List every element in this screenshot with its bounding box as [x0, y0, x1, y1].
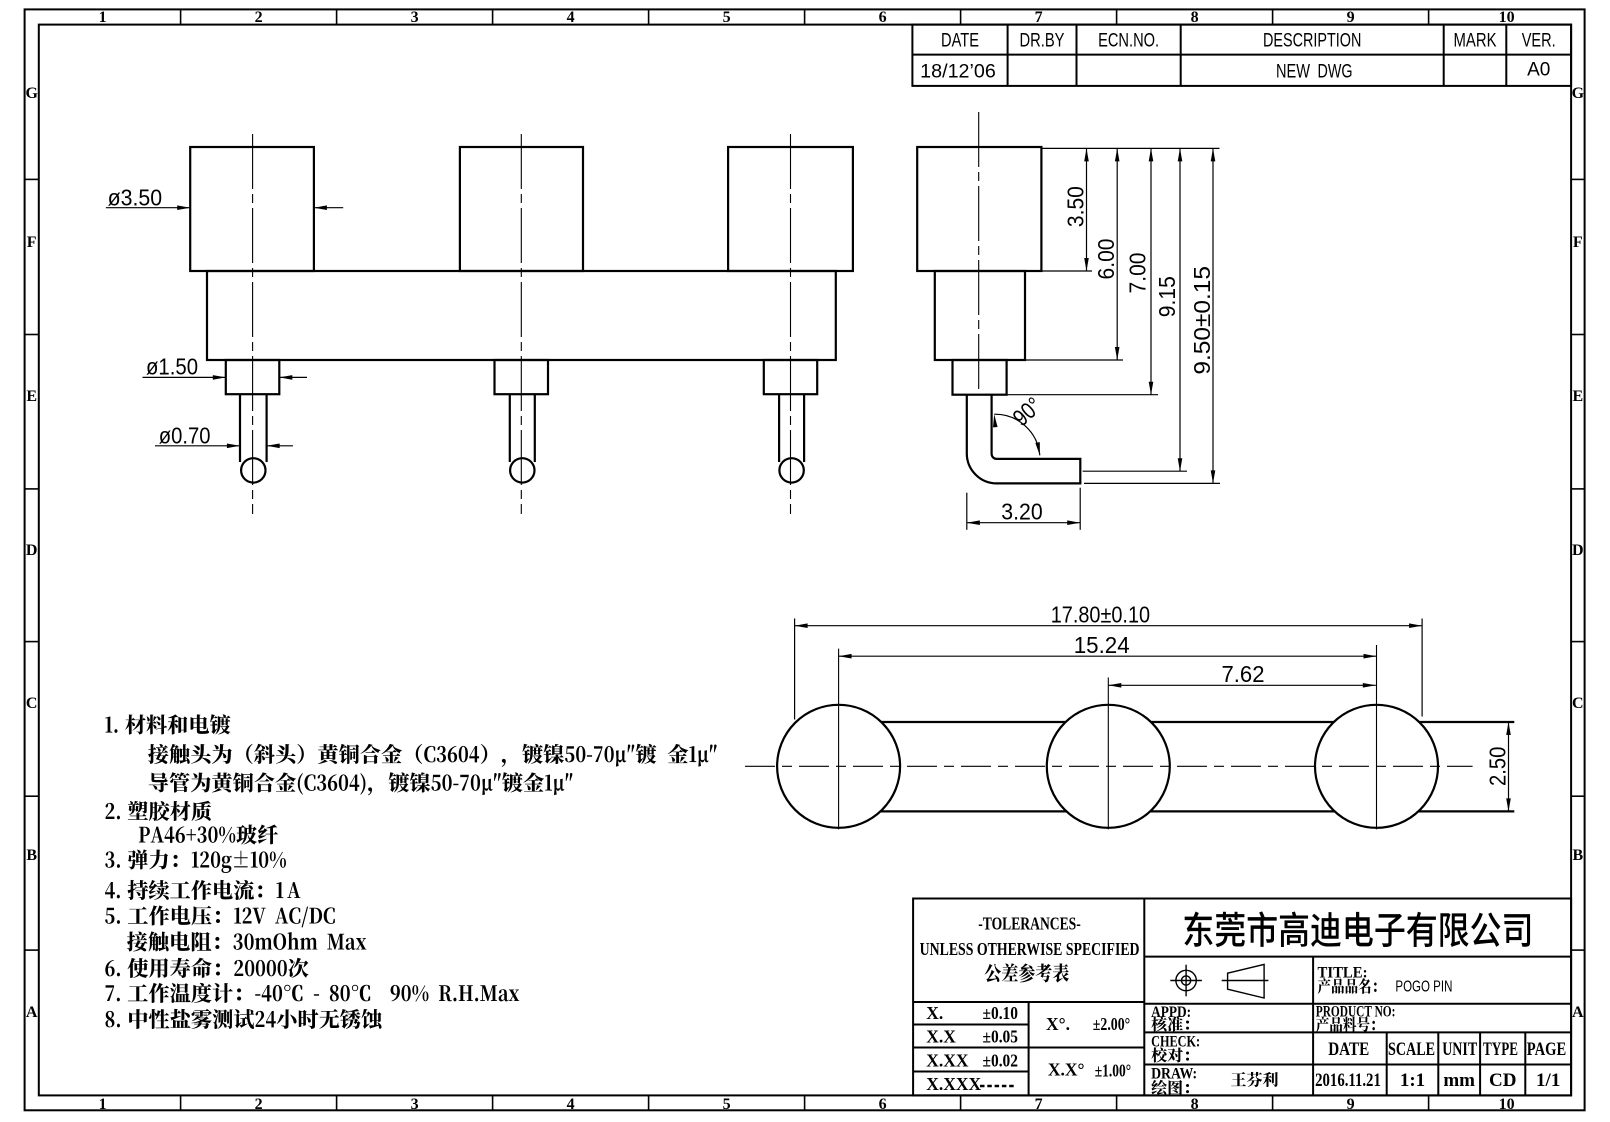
svg-text:UNIT: UNIT [1442, 1039, 1477, 1060]
svg-text:±2.00°: ±2.00° [1093, 1014, 1130, 1034]
svg-text:A: A [26, 1004, 38, 1021]
svg-text:4: 4 [567, 1096, 575, 1113]
svg-text:ECN.NO.: ECN.NO. [1098, 31, 1159, 52]
svg-text:PRODUCT NO:: PRODUCT NO: [1316, 1003, 1396, 1020]
svg-text:5: 5 [723, 1096, 731, 1113]
svg-text:MARK: MARK [1454, 31, 1497, 52]
svg-text:6: 6 [879, 9, 887, 26]
svg-text:G: G [1572, 85, 1585, 102]
svg-text:3.50: 3.50 [1063, 186, 1089, 227]
svg-text:2: 2 [255, 9, 263, 26]
svg-text:G: G [25, 85, 38, 102]
svg-text:B: B [1572, 847, 1583, 864]
svg-text:ø1.50: ø1.50 [146, 354, 198, 380]
svg-text:17.80±0.10: 17.80±0.10 [1051, 602, 1150, 628]
svg-text:SCALE: SCALE [1388, 1039, 1435, 1060]
svg-text:10: 10 [1499, 1096, 1515, 1113]
svg-text:7: 7 [1035, 9, 1043, 26]
svg-text:8: 8 [1191, 9, 1199, 26]
svg-text:1: 1 [99, 1096, 107, 1113]
svg-text:-TOLERANCES-: -TOLERANCES- [978, 913, 1081, 933]
svg-text:2: 2 [255, 1096, 263, 1113]
svg-text:5: 5 [723, 9, 731, 26]
svg-text:9.50±0.15: 9.50±0.15 [1189, 266, 1215, 375]
svg-text:D: D [1572, 542, 1584, 559]
svg-text:ø0.70: ø0.70 [159, 423, 211, 449]
svg-text:X.X: X.X [926, 1027, 956, 1047]
svg-text:3: 3 [411, 9, 419, 26]
svg-text:A0: A0 [1527, 60, 1550, 81]
svg-text:4: 4 [567, 9, 575, 26]
svg-text:2016.11.21: 2016.11.21 [1315, 1070, 1381, 1091]
svg-text:APPD:: APPD: [1151, 1004, 1191, 1021]
svg-text:D: D [26, 542, 38, 559]
svg-text:2.50: 2.50 [1485, 747, 1511, 786]
svg-text:E: E [1572, 388, 1583, 405]
svg-text:E: E [26, 388, 37, 405]
svg-text:TYPE: TYPE [1483, 1039, 1518, 1060]
svg-text:8: 8 [1191, 1096, 1199, 1113]
svg-text:DWG: DWG [1318, 62, 1353, 83]
svg-text:X.X°: X.X° [1048, 1060, 1085, 1080]
svg-text:B: B [26, 847, 37, 864]
svg-text:C: C [1572, 695, 1584, 712]
svg-text:9: 9 [1347, 1096, 1355, 1113]
svg-text:±0.05: ±0.05 [983, 1027, 1019, 1047]
svg-text:CD: CD [1489, 1070, 1516, 1091]
svg-text:1: 1 [99, 9, 107, 26]
svg-text:90°: 90° [1008, 392, 1047, 431]
svg-text:DR.BY: DR.BY [1020, 31, 1065, 52]
svg-text:X.XXX: X.XXX [926, 1074, 981, 1094]
svg-text:±0.10: ±0.10 [983, 1003, 1019, 1023]
svg-text:DATE: DATE [941, 31, 979, 52]
svg-text:C: C [26, 695, 38, 712]
svg-text:A: A [1572, 1004, 1584, 1021]
svg-text:VER.: VER. [1522, 31, 1556, 52]
svg-text:ø3.50: ø3.50 [108, 185, 163, 211]
svg-text:6: 6 [879, 1096, 887, 1113]
svg-text:DATE: DATE [1328, 1039, 1369, 1060]
svg-text:18/12’06: 18/12’06 [920, 62, 996, 83]
svg-text:9.15: 9.15 [1154, 276, 1180, 317]
svg-text:F: F [27, 234, 37, 251]
svg-text:7.62: 7.62 [1222, 661, 1265, 687]
svg-text:6.00: 6.00 [1093, 239, 1119, 280]
svg-text:DESCRIPTION: DESCRIPTION [1263, 31, 1361, 52]
svg-text:CHECK:: CHECK: [1151, 1034, 1200, 1051]
svg-text:F: F [1573, 234, 1583, 251]
svg-text:DRAW:: DRAW: [1151, 1066, 1197, 1083]
svg-text:POGO PIN: POGO PIN [1395, 979, 1452, 996]
svg-text:mm: mm [1443, 1070, 1475, 1091]
svg-text:7: 7 [1035, 1096, 1043, 1113]
svg-text:1/1: 1/1 [1536, 1070, 1560, 1091]
svg-text:10: 10 [1499, 9, 1515, 26]
svg-text:X°.: X°. [1046, 1014, 1070, 1034]
svg-text:X.: X. [926, 1003, 943, 1023]
svg-text:3: 3 [411, 1096, 419, 1113]
svg-text:UNLESS OTHERWISE SPECIFIED: UNLESS OTHERWISE SPECIFIED [920, 939, 1140, 959]
svg-text:15.24: 15.24 [1074, 632, 1130, 658]
svg-text:1:1: 1:1 [1400, 1070, 1425, 1091]
svg-text:NEW: NEW [1276, 62, 1310, 83]
svg-text:7.00: 7.00 [1125, 253, 1151, 294]
svg-text:±1.00°: ±1.00° [1095, 1061, 1131, 1081]
svg-text:X.XX: X.XX [926, 1051, 969, 1071]
svg-text:3.20: 3.20 [1001, 499, 1042, 525]
svg-text:PAGE: PAGE [1527, 1039, 1566, 1060]
svg-text:9: 9 [1347, 9, 1355, 26]
svg-text:±0.02: ±0.02 [983, 1051, 1019, 1071]
